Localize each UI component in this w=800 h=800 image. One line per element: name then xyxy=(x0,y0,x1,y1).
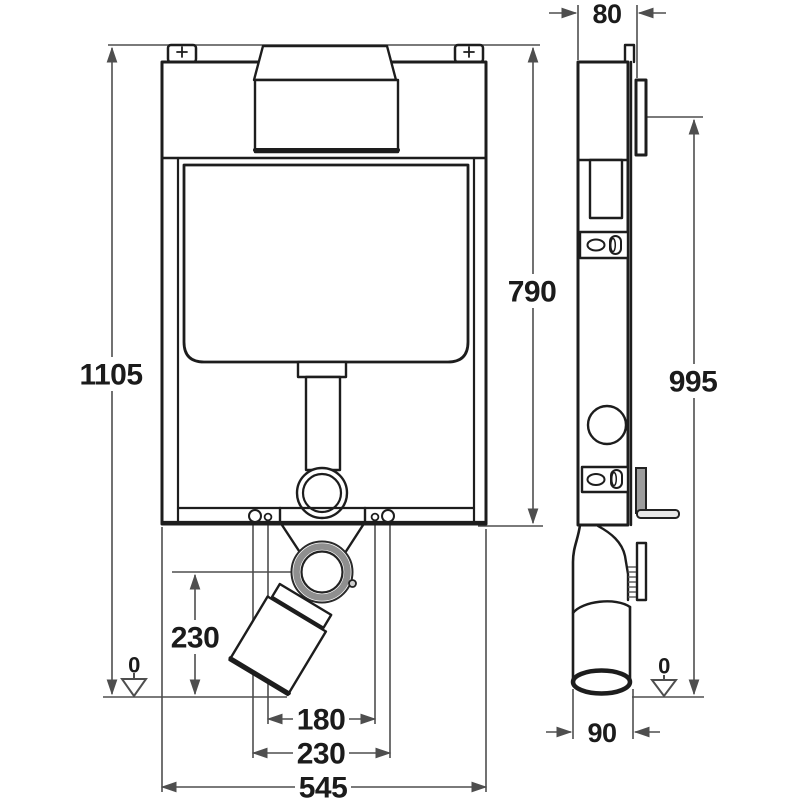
dim-label-80: 80 xyxy=(592,0,621,29)
side-view xyxy=(573,45,679,694)
outlet-cylinder-rim xyxy=(573,601,630,613)
dim-label-995: 995 xyxy=(669,366,718,399)
bracket-upper xyxy=(580,232,628,258)
dim-label-790: 790 xyxy=(508,276,557,309)
front-view xyxy=(162,45,486,695)
outlet-bend-right-edge xyxy=(598,526,628,600)
fixing-hole-right-outer xyxy=(382,510,394,522)
technical-drawing-page: 1105 790 995 230 180 230 545 80 90 0 0 xyxy=(0,0,800,800)
cistern-frame-drawing: 1105 790 995 230 180 230 545 80 90 0 0 xyxy=(0,0,800,800)
cistern-body xyxy=(184,165,468,362)
access-chute xyxy=(254,46,396,80)
level-label-left: 0 xyxy=(128,653,140,678)
flush-plate-side xyxy=(636,80,646,155)
flush-pipe xyxy=(306,377,340,470)
dim-label-545: 545 xyxy=(299,772,348,800)
flush-pipe-collar xyxy=(298,362,346,377)
dim-label-230-vertical: 230 xyxy=(171,622,220,655)
dim-label-180: 180 xyxy=(297,704,346,737)
fixing-hole-right-inner xyxy=(372,514,379,521)
dim-label-230-horizontal: 230 xyxy=(297,738,346,771)
anchor-plate xyxy=(636,468,646,513)
flush-plate-box xyxy=(255,80,398,152)
dim-label-1105: 1105 xyxy=(79,359,142,392)
outlet-bend-left-edge xyxy=(573,525,580,681)
fixing-hole-left-outer xyxy=(249,510,261,522)
pipe-clamp-hatching xyxy=(628,567,636,597)
dim-label-90: 90 xyxy=(587,718,616,748)
supply-pipe-circle xyxy=(588,406,626,444)
flush-bend-outer xyxy=(297,468,347,518)
fixing-hole-left-inner xyxy=(265,514,272,521)
wall-plate-bottom xyxy=(637,543,646,600)
service-recess xyxy=(590,160,622,218)
ball-joint-screw xyxy=(349,580,356,587)
bracket-lower xyxy=(582,467,628,492)
wall-tab xyxy=(625,45,634,62)
level-label-right: 0 xyxy=(658,654,670,679)
support-rod xyxy=(637,510,679,518)
side-profile xyxy=(578,62,628,525)
